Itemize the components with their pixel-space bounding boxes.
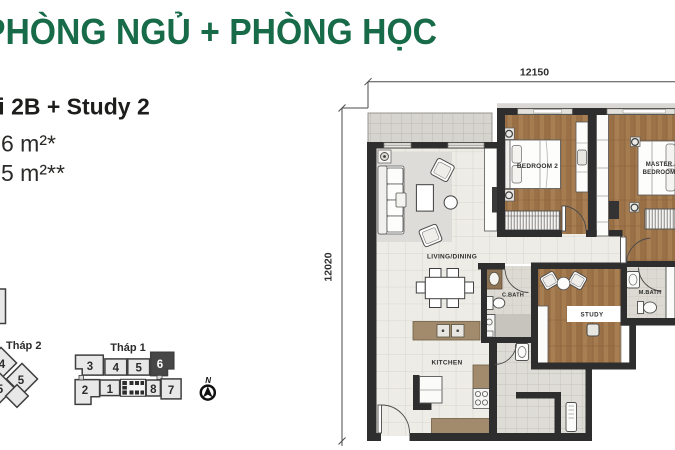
svg-text:LIVING/DINING: LIVING/DINING: [427, 254, 477, 261]
svg-text:5: 5: [18, 375, 25, 387]
svg-text:ại 2B + Study 2: ại 2B + Study 2: [0, 94, 150, 120]
svg-text:12020: 12020: [323, 252, 335, 281]
svg-text:BEDROOM 2: BEDROOM 2: [517, 163, 558, 170]
svg-text:Tháp 1: Tháp 1: [110, 342, 145, 354]
svg-text:3: 3: [87, 361, 93, 373]
svg-text:Tháp 2: Tháp 2: [6, 340, 41, 352]
svg-text:5: 5: [135, 363, 142, 375]
svg-text:4: 4: [0, 359, 6, 371]
svg-text:KITCHEN: KITCHEN: [432, 360, 463, 367]
svg-text:7: 7: [168, 385, 174, 397]
svg-text:PHÒNG NGỦ + PHÒNG HỌC: PHÒNG NGỦ + PHÒNG HỌC: [0, 10, 437, 52]
svg-text:MASTER: MASTER: [646, 162, 673, 168]
svg-text:BEDROOM: BEDROOM: [643, 170, 675, 176]
svg-text:1: 1: [107, 384, 114, 396]
svg-text:6: 6: [157, 359, 163, 371]
svg-text:6 m²*: 6 m²*: [1, 131, 56, 157]
svg-text:5 m²**: 5 m²**: [1, 160, 65, 186]
svg-text:8: 8: [150, 384, 157, 396]
svg-text:12150: 12150: [520, 67, 549, 79]
svg-text:M.BATH: M.BATH: [639, 290, 662, 296]
svg-text:4: 4: [113, 363, 120, 375]
svg-text:C.BATH: C.BATH: [502, 293, 524, 299]
svg-text:STUDY: STUDY: [581, 312, 604, 319]
svg-text:2: 2: [82, 385, 88, 397]
svg-text:N: N: [205, 376, 211, 385]
